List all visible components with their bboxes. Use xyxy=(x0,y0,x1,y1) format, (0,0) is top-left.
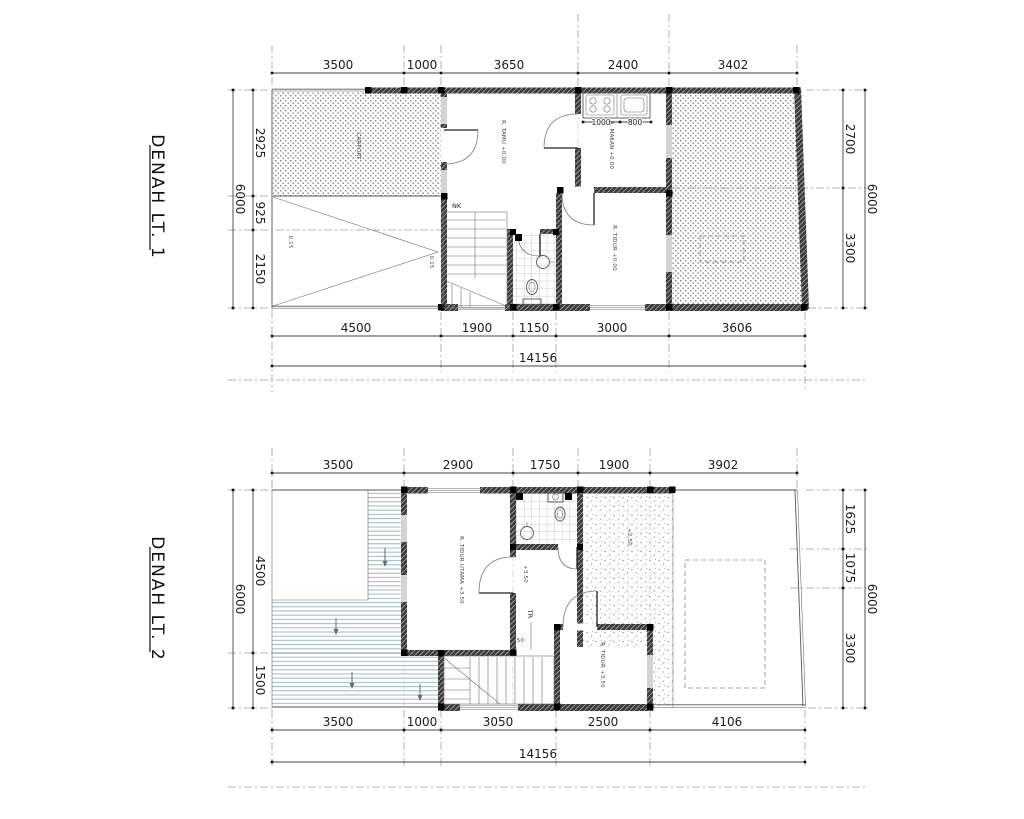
kitchen-dim-label: 1000 xyxy=(591,118,610,127)
lt1-dims-bottom: 4500 1900 1150 3000 3606 14156 xyxy=(271,321,807,367)
dim-label: 3606 xyxy=(722,321,753,335)
roofdeck-level-label: +2.50 xyxy=(626,528,632,546)
plan-lt2: TR 150 R. TIDUR UTAMA +3.50 R. TIDUR +3.… xyxy=(147,448,879,787)
dim-label: 2700 xyxy=(843,124,857,155)
floorplan-drawing: 1000 800 NK CARPORT R. TAMU +0.00 R. MAK… xyxy=(0,0,1024,819)
dim-label: 925 xyxy=(253,202,267,225)
step-note: 150 xyxy=(513,638,524,644)
stair-down-label: TR xyxy=(526,609,534,619)
dim-total-label: 6000 xyxy=(233,584,247,615)
lt2-stairs xyxy=(444,622,554,704)
dim-label: 1900 xyxy=(462,321,493,335)
master-bedroom-label: R. TIDUR UTAMA +3.50 xyxy=(458,536,464,604)
dim-label: 1075 xyxy=(843,553,857,584)
dim-label: 3402 xyxy=(718,58,749,72)
dim-label: 4106 xyxy=(712,715,743,729)
dim-label: 2500 xyxy=(588,715,619,729)
dim-total-label: 6000 xyxy=(865,184,879,215)
dim-label: 1900 xyxy=(599,458,630,472)
dim-label: 1625 xyxy=(843,504,857,535)
dim-label: 3300 xyxy=(843,633,857,664)
dim-total-label: 14156 xyxy=(519,747,557,761)
dim-label: 4500 xyxy=(253,556,267,587)
lt1-dims-left: 2925 925 2150 6000 xyxy=(232,89,267,310)
dim-label: 1500 xyxy=(253,665,267,696)
lt2-title: DENAH LT. 2 xyxy=(147,536,167,662)
lt2-dims-bottom: 3500 1000 3050 2500 4106 14156 xyxy=(271,715,807,763)
dim-label: 1150 xyxy=(519,321,550,335)
dim-label: 1000 xyxy=(407,715,438,729)
dim-label: 2900 xyxy=(443,458,474,472)
kitchen-dim-label: 800 xyxy=(628,118,643,127)
dim-label: 3050 xyxy=(483,715,514,729)
slope-label: 0.15 xyxy=(428,255,434,268)
dim-label: 3300 xyxy=(843,233,857,264)
dim-label: 2400 xyxy=(608,58,639,72)
lt2-void-outline xyxy=(685,560,765,688)
lt1-stairs xyxy=(443,212,507,308)
bedroom2-label: R. TIDUR +3.50 xyxy=(599,642,605,688)
dim-label: 1000 xyxy=(407,58,438,72)
dim-label: 3650 xyxy=(494,58,525,72)
slope-label: 0.15 xyxy=(287,235,293,248)
dim-label: 3500 xyxy=(323,715,354,729)
lt2-roof-stripes xyxy=(272,490,441,707)
lt1-title: DENAH LT. 1 xyxy=(147,134,167,260)
stair-up-label: NK xyxy=(452,202,462,210)
dim-label: 2925 xyxy=(253,128,267,159)
hall-level-label: +3.50 xyxy=(522,565,528,583)
bedroom-label: R. TIDUR +0.00 xyxy=(611,225,617,271)
plan-lt1: 1000 800 NK CARPORT R. TAMU +0.00 R. MAK… xyxy=(147,14,879,392)
lt2-dims-top: 3500 2900 1750 1900 3902 xyxy=(271,458,799,474)
lt1-backyard-paving xyxy=(672,88,806,309)
dim-label: 1750 xyxy=(530,458,561,472)
lt2-dims-right: 1625 1075 3300 6000 xyxy=(842,489,879,710)
lt1-dims-top: 3500 1000 3650 2400 3402 xyxy=(271,58,799,74)
dim-label: 3500 xyxy=(323,458,354,472)
dim-label: 2150 xyxy=(253,254,267,285)
lt1-ramp-lines xyxy=(273,196,441,306)
carport-label: CARPORT xyxy=(355,132,361,160)
dim-label: 4500 xyxy=(341,321,372,335)
dim-label: 3500 xyxy=(323,58,354,72)
dim-total-label: 6000 xyxy=(865,584,879,615)
dim-total-label: 6000 xyxy=(233,184,247,215)
lt1-dims-right: 2700 3300 6000 xyxy=(842,89,879,310)
floorplan-sheet: 1000 800 NK CARPORT R. TAMU +0.00 R. MAK… xyxy=(0,0,1024,819)
dim-label: 3000 xyxy=(597,321,628,335)
lt1-kitchen-counter: 1000 800 xyxy=(582,92,653,127)
lt2-dims-left: 4500 1500 6000 xyxy=(232,489,267,710)
living-room-label: R. TAMU +0.00 xyxy=(500,120,506,164)
dim-total-label: 14156 xyxy=(519,351,557,365)
dim-label: 3902 xyxy=(708,458,739,472)
dining-room-label: R. MAKAN +0.00 xyxy=(608,121,614,170)
